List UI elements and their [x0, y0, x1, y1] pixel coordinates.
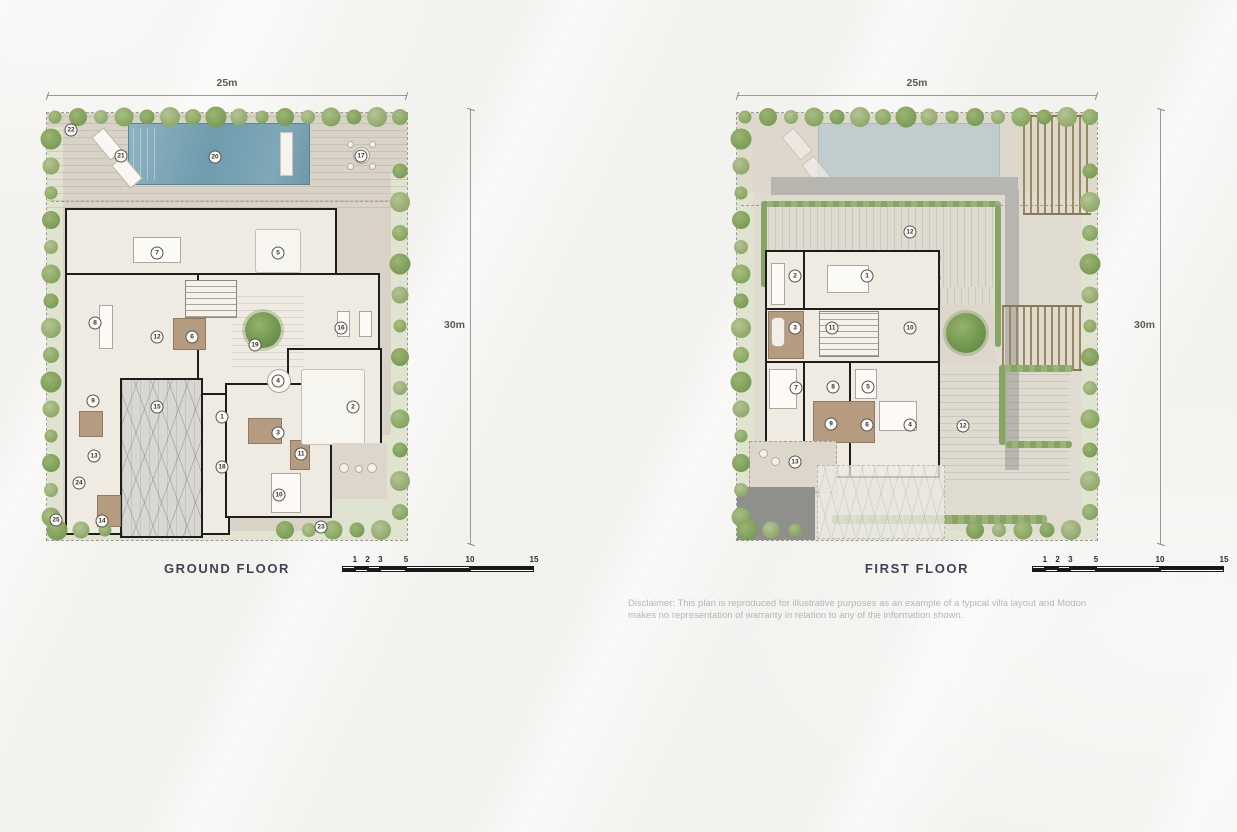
tree-icon	[731, 318, 751, 338]
tree-icon	[73, 522, 90, 539]
tree-icon	[1014, 521, 1033, 540]
tree-icon	[276, 521, 294, 539]
tree-icon	[44, 483, 58, 497]
tree-icon	[1040, 523, 1055, 538]
scale-tick-label: 5	[1094, 555, 1098, 564]
kitchen-island-icon	[99, 305, 113, 349]
tree-icon	[393, 443, 408, 458]
stairs	[185, 280, 237, 318]
tree-icon	[732, 265, 751, 284]
scale-segment	[1058, 569, 1071, 572]
majlis-sofas-icon	[301, 369, 365, 445]
tree-icon	[391, 410, 410, 429]
tree-icon	[367, 107, 387, 127]
tree-icon	[732, 211, 750, 229]
tree-icon	[1037, 110, 1052, 125]
tree-icon	[115, 108, 134, 127]
tree-icon	[42, 265, 61, 284]
tree-icon	[393, 164, 408, 179]
bathroom	[248, 418, 282, 444]
tree-icon	[94, 110, 108, 124]
scale-segment	[1045, 569, 1058, 572]
tree-icon	[966, 521, 984, 539]
scale-tick-label: 1	[353, 555, 357, 564]
tree-icon	[1080, 192, 1100, 212]
tree-icon	[735, 187, 748, 200]
outdoor-seat-icon	[337, 311, 350, 337]
scale-segment	[342, 569, 355, 572]
scale-tick-label: 2	[365, 555, 369, 564]
scale-tick-label: 15	[530, 555, 539, 564]
tree-icon	[1083, 164, 1098, 179]
tree-icon	[347, 110, 362, 125]
tree-icon	[324, 521, 343, 540]
tree-icon	[49, 111, 62, 124]
tree-icon	[69, 108, 87, 126]
bed-icon	[879, 401, 917, 431]
height-dimension-line	[1160, 109, 1161, 545]
scale-tick-label: 1	[1043, 555, 1047, 564]
scale-segment	[1070, 569, 1096, 572]
wall	[767, 308, 938, 310]
tree-icon	[733, 347, 749, 363]
planter-hedge	[995, 205, 1001, 347]
bed-icon	[271, 473, 301, 513]
bathroom	[173, 318, 206, 350]
tree-icon	[1082, 504, 1098, 520]
pool-ledge	[280, 132, 293, 176]
tree-icon	[789, 524, 802, 537]
first-floor-lot	[737, 113, 1097, 540]
family-dining-table-icon	[267, 369, 291, 393]
chair-icon	[369, 163, 376, 170]
chair-icon	[347, 163, 354, 170]
tree-icon	[99, 524, 112, 537]
tree-icon	[140, 110, 155, 125]
garage	[120, 378, 203, 538]
tree-icon	[734, 240, 748, 254]
scale-segment	[470, 569, 534, 572]
sofa-set-icon	[255, 229, 301, 273]
scale-tick-label: 2	[1055, 555, 1059, 564]
tree-icon	[45, 430, 58, 443]
tree-icon	[160, 107, 180, 127]
height-dimension-label: 30m	[1125, 319, 1155, 331]
chair-icon	[369, 141, 376, 148]
chair-icon	[355, 465, 363, 473]
tree-icon	[784, 110, 798, 124]
tree-icon	[392, 504, 408, 520]
courtyard-tree-icon	[946, 313, 986, 353]
tree-icon	[966, 108, 984, 126]
tree-icon	[1083, 381, 1097, 395]
tree-icon	[1082, 287, 1099, 304]
bed-icon	[769, 369, 797, 409]
tree-icon	[44, 294, 59, 309]
tree-icon	[42, 454, 60, 472]
roof-shadow	[771, 177, 1018, 195]
tree-icon	[733, 401, 750, 418]
tree-icon	[1082, 225, 1098, 241]
tree-icon	[759, 108, 777, 126]
tree-icon	[1080, 254, 1101, 275]
tree-icon	[41, 372, 62, 393]
scale-segment	[406, 569, 470, 572]
tree-icon	[731, 372, 752, 393]
planter-hedge	[761, 201, 1001, 207]
tree-icon	[256, 111, 269, 124]
tree-icon	[737, 520, 758, 541]
tree-icon	[805, 108, 824, 127]
tree-icon	[276, 108, 294, 126]
tree-icon	[371, 520, 391, 540]
scale-tick-label: 15	[1220, 555, 1229, 564]
scale-tick-label: 3	[1068, 555, 1072, 564]
tree-icon	[392, 287, 409, 304]
tree-icon	[206, 107, 227, 128]
chair-icon	[759, 449, 768, 458]
tree-icon	[393, 381, 407, 395]
outdoor-dining-table	[353, 147, 370, 164]
chair-icon	[347, 141, 354, 148]
tree-icon	[830, 110, 845, 125]
stairs	[819, 311, 879, 357]
bed-icon	[827, 265, 869, 293]
tree-icon	[390, 471, 410, 491]
scale-segment	[368, 569, 381, 572]
tree-icon	[735, 430, 748, 443]
tree-icon	[1083, 443, 1098, 458]
tree-icon	[992, 523, 1006, 537]
scale-segment	[1032, 569, 1045, 572]
driveway-below	[817, 465, 945, 539]
bathroom	[79, 411, 103, 437]
ground-floor-lot	[47, 113, 407, 540]
tree-icon	[875, 109, 891, 125]
scale-tick-label: 3	[378, 555, 382, 564]
bathroom	[813, 401, 875, 443]
scale-tick-label: 5	[404, 555, 408, 564]
wardrobe-icon	[771, 263, 785, 305]
tree-icon	[732, 454, 750, 472]
tree-icon	[390, 192, 410, 212]
tree-icon	[392, 109, 408, 125]
tree-icon	[1084, 320, 1097, 333]
tree-icon	[850, 107, 870, 127]
tree-icon	[1082, 109, 1098, 125]
tree-icon	[739, 111, 752, 124]
tree-icon	[41, 318, 61, 338]
planter-hedge	[999, 365, 1006, 445]
tree-icon	[43, 401, 60, 418]
tree-icon	[185, 109, 201, 125]
tree-icon	[763, 522, 780, 539]
chair-icon	[367, 463, 377, 473]
tree-icon	[1081, 348, 1099, 366]
tree-icon	[350, 523, 365, 538]
height-dimension-label: 30m	[435, 319, 465, 331]
swimming-pool-below	[818, 123, 1000, 185]
tree-icon	[946, 111, 959, 124]
swimming-pool	[128, 123, 310, 185]
scale-segment	[1096, 569, 1160, 572]
tree-icon	[42, 211, 60, 229]
planter-hedge	[999, 365, 1073, 372]
tree-icon	[734, 294, 749, 309]
height-dimension-line	[470, 109, 471, 545]
tree-icon	[391, 348, 409, 366]
tree-icon	[921, 109, 938, 126]
tree-icon	[1081, 410, 1100, 429]
tree-icon	[45, 187, 58, 200]
disclaimer-text: Disclaimer: This plan is reproduced for …	[628, 598, 1148, 621]
deck-boundary	[51, 201, 403, 202]
tree-icon	[1061, 520, 1081, 540]
tree-icon	[731, 129, 752, 150]
wall	[803, 252, 805, 310]
scale-bar: 12351015	[1032, 566, 1224, 572]
dining-table-icon	[133, 237, 181, 263]
bathroom	[97, 495, 121, 527]
scale-bar: 12351015	[342, 566, 534, 572]
tree-icon	[390, 254, 411, 275]
chair-icon	[771, 457, 780, 466]
wall	[767, 361, 938, 363]
tree-icon	[302, 523, 316, 537]
tree-icon	[44, 240, 58, 254]
bathtub-icon	[771, 317, 785, 347]
tree-icon	[394, 320, 407, 333]
tree-icon	[734, 483, 748, 497]
disclaimer-line: Disclaimer: This plan is reproduced for …	[628, 598, 1086, 609]
pergola	[1002, 305, 1082, 371]
width-dimension-line	[47, 95, 407, 96]
scale-tick-label: 10	[1156, 555, 1165, 564]
scale-segment	[355, 569, 368, 572]
first-floor-plan: 25m 30m	[737, 113, 1097, 540]
bed-icon	[855, 369, 877, 399]
tree-icon	[231, 109, 248, 126]
outdoor-seat-icon	[359, 311, 372, 337]
tree-icon	[43, 347, 59, 363]
tree-icon	[733, 158, 750, 175]
tree-icon	[322, 108, 341, 127]
chair-icon	[339, 463, 349, 473]
ground-floor-plan: 25m 30m	[47, 113, 407, 540]
tree-icon	[301, 110, 315, 124]
tree-icon	[1080, 471, 1100, 491]
disclaimer-line: makes no representation of warranty in r…	[628, 610, 963, 621]
courtyard-tree-icon	[245, 312, 281, 348]
scale-segment	[380, 569, 406, 572]
planter-hedge	[1006, 441, 1072, 448]
width-dimension-label: 25m	[737, 77, 1097, 89]
tree-icon	[392, 225, 408, 241]
tree-icon	[1057, 107, 1077, 127]
tree-icon	[47, 520, 68, 541]
tree-icon	[896, 107, 917, 128]
tree-icon	[1012, 108, 1031, 127]
tree-icon	[43, 158, 60, 175]
tree-icon	[41, 129, 62, 150]
tree-icon	[991, 110, 1005, 124]
width-dimension-label: 25m	[47, 77, 407, 89]
width-dimension-line	[737, 95, 1097, 96]
scale-segment	[1160, 569, 1224, 572]
scale-tick-label: 10	[466, 555, 475, 564]
